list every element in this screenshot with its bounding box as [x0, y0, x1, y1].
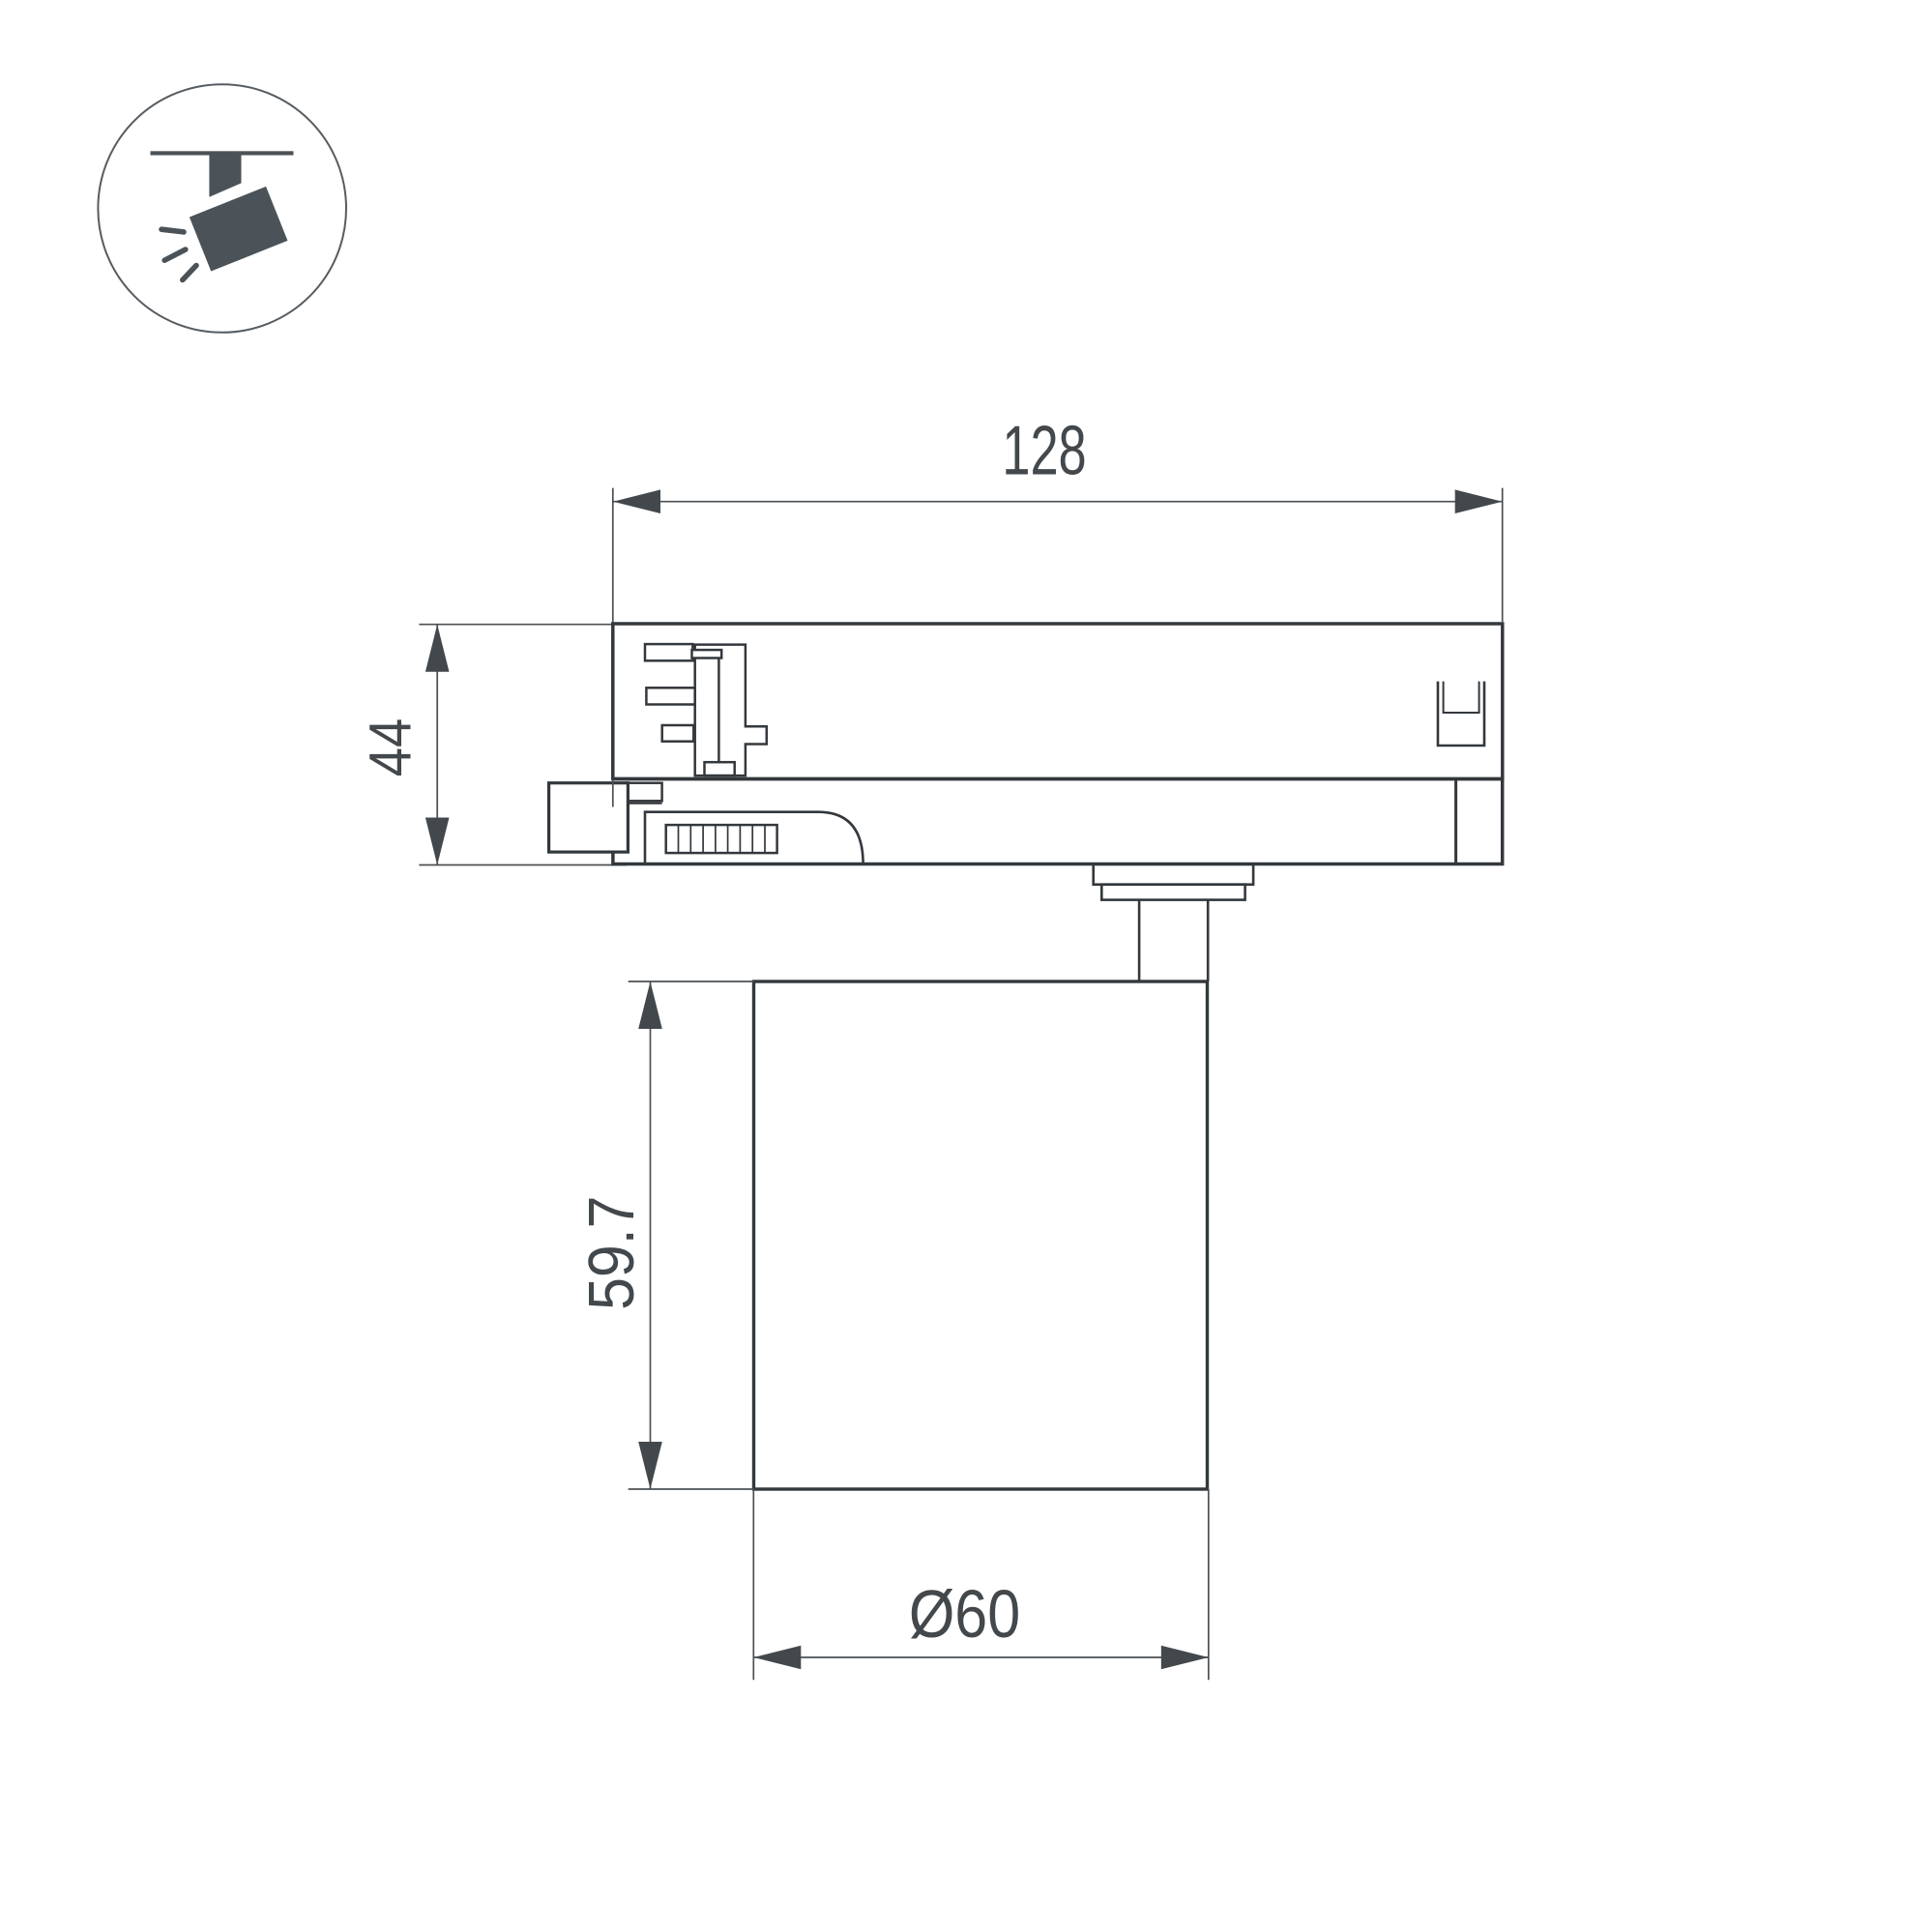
svg-text:44: 44	[359, 718, 424, 777]
svg-text:128: 128	[1002, 413, 1086, 490]
svg-text:59.7: 59.7	[574, 1195, 647, 1309]
svg-text:Ø60: Ø60	[909, 1576, 1020, 1652]
